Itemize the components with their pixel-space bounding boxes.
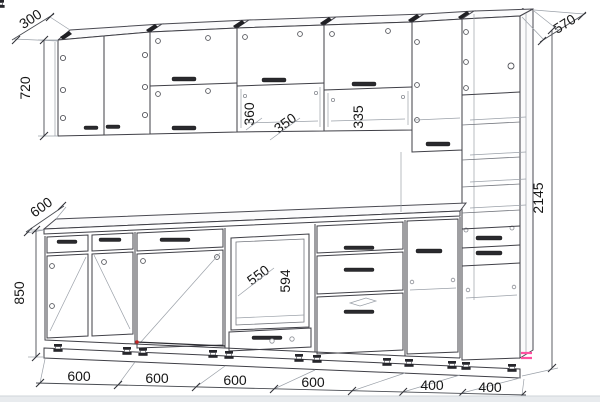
dim-width-5: 400 (420, 377, 444, 393)
dim-335-label: 335 (350, 105, 366, 129)
door-knob (508, 63, 514, 69)
dim-width-3: 600 (223, 372, 247, 388)
dim-width-4: 600 (301, 374, 325, 390)
dim-base-height: 850 (11, 226, 44, 361)
base-cabinet-drawers (317, 222, 403, 354)
drawer-handle (344, 268, 374, 272)
drawer-handle (476, 251, 502, 255)
flip-door-handle (172, 126, 196, 130)
plinth (44, 340, 532, 378)
dim-300-label: 300 (16, 6, 44, 32)
drawer-handle (476, 236, 502, 240)
base-cabinet-1 (47, 233, 133, 338)
kitchen-elevation-drawing: 300 720 600 850 (0, 0, 600, 402)
red-marker (135, 340, 139, 344)
dim-360-label: 360 (241, 102, 257, 126)
base-cabinet-door-400 (407, 219, 458, 354)
dim-720-label: 720 (17, 76, 33, 100)
dim-width-2: 600 (145, 370, 169, 386)
drawer-handle (57, 240, 77, 244)
flip-door-handle (262, 78, 286, 82)
door-handle (426, 142, 450, 146)
door-handle (84, 126, 98, 130)
dim-600-depth-label: 600 (27, 193, 55, 220)
wall-cabinet-two-doors (55, 32, 150, 136)
flip-door-handle (172, 77, 196, 81)
base-cabinet-2 (137, 229, 223, 348)
tall-pantry-cabinet (462, 9, 533, 360)
drawing-canvas: 300 720 600 850 (0, 0, 600, 402)
flip-door-handle (352, 82, 376, 86)
wall-cabinet-niche-335 (324, 22, 412, 131)
door-handle (416, 249, 442, 253)
wall-cabinet-flip-doors (150, 28, 237, 134)
dim-2145-label: 2145 (530, 182, 546, 213)
door-handle (106, 125, 120, 129)
drawer-handle (344, 246, 374, 250)
drawer-handle (344, 310, 374, 314)
base-cabinet-oven (229, 234, 311, 351)
wall-cabinets-row (55, 8, 526, 152)
drawer-handle (99, 238, 121, 242)
dim-wall-height: 720 (17, 36, 58, 140)
dim-550-label: 550 (244, 261, 272, 288)
dim-850-label: 850 (11, 281, 27, 305)
wall-cabinet-tall-400 (412, 19, 462, 152)
viewport-bottom-band (0, 396, 600, 402)
drawer-handle (160, 238, 190, 242)
dim-594-label: 594 (277, 269, 293, 293)
drawer-handle (252, 336, 282, 340)
dim-width-6: 400 (478, 379, 502, 395)
dim-width-1: 600 (67, 368, 91, 384)
